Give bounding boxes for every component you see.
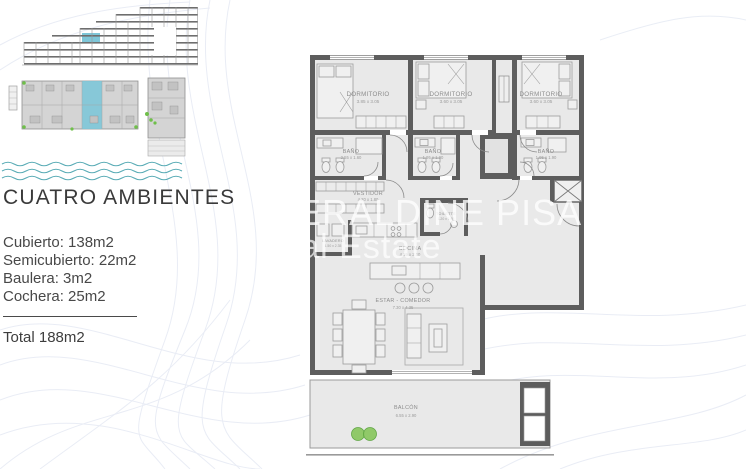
estar-dims: 7.30 x 4.35: [393, 305, 414, 310]
siteplan-main-block: [22, 81, 138, 131]
area-specs: Cubierto: 138m2 Semicubierto: 22m2 Baule…: [3, 234, 235, 306]
lavadero-dims: 1.50 x 2.35: [325, 244, 342, 248]
plan-title: CUATRO AMBIENTES: [3, 186, 235, 210]
balcony: [306, 380, 554, 456]
bedroom3-dims: 3.60 x 3.05: [530, 99, 553, 104]
total-area: Total 188m2: [3, 329, 235, 346]
spec-cubierto: Cubierto: 138m2: [3, 234, 235, 252]
bedroom1-label: DORMITORIO: [346, 91, 389, 98]
bath3-label: BAÑO: [538, 148, 554, 155]
water-waves-decoration: [0, 160, 190, 186]
building-elevation-drawing: [22, 2, 198, 66]
lavadero-label: LAVADERO: [322, 239, 344, 243]
highlighted-unit-elevation: [82, 33, 100, 42]
vestidor-dims: 4.20 x 1.80: [358, 197, 379, 202]
duct-crossed: [554, 180, 582, 202]
flyer-page: CUATRO AMBIENTES Cubierto: 138m2 Semicub…: [0, 0, 746, 469]
bedroom2-label: DORMITORIO: [429, 91, 472, 98]
bath2-dims: 1.95 x 1.90: [423, 155, 444, 160]
bath1-dims: 2.55 x 1.60: [341, 155, 362, 160]
bedroom1-dims: 3.85 x 3.05: [357, 99, 380, 104]
toilette-label: TOILETTE: [436, 212, 456, 216]
bedroom2-dims: 3.60 x 3.05: [440, 99, 463, 104]
bath2-label: BAÑO: [425, 148, 441, 155]
floor-plan: DORMITORIO 3.85 x 3.05 DORMITORIO 3.60 x…: [296, 52, 600, 460]
site-plan-drawing: [6, 76, 188, 164]
balcon-label: BALCÓN: [394, 404, 418, 411]
building-arch-gap: [154, 27, 176, 55]
bath3-dims: 1.95 x 1.90: [536, 155, 557, 160]
building-slabs: [22, 7, 198, 65]
spec-baulera: Baulera: 3m2: [3, 270, 235, 288]
estar-label: ESTAR - COMEDOR: [375, 298, 430, 304]
balcon-dims: 6.55 x 2.90: [396, 413, 417, 418]
toilette-dims: 1.20 x 1.65: [438, 217, 455, 221]
divider-line: [3, 316, 137, 317]
cocina-dims: 4.55 x 2.10: [400, 252, 421, 257]
spec-semicubierto: Semicubierto: 22m2: [3, 252, 235, 270]
siteplan-right-block: [145, 78, 185, 156]
bedroom3-label: DORMITORIO: [519, 91, 562, 98]
info-panel: CUATRO AMBIENTES Cubierto: 138m2 Semicub…: [3, 186, 235, 346]
spec-cochera: Cochera: 25m2: [3, 288, 235, 306]
bath1-label: BAÑO: [343, 148, 359, 155]
